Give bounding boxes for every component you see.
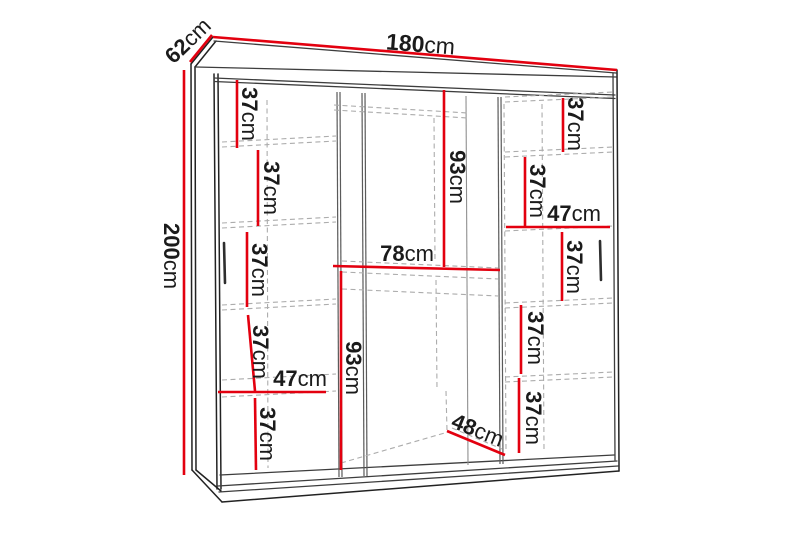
- left-back-edge-inner: [195, 67, 196, 470]
- frame-top-line-2: [214, 82, 615, 99]
- right-shelf-3-label: 37cm: [562, 240, 587, 294]
- right-shelf-1-label: 37cm: [563, 97, 588, 151]
- left-front-edge-inner: [218, 74, 221, 489]
- door-divider-c1: [498, 97, 500, 464]
- door-divider-b2: [365, 93, 367, 476]
- right-door-handle: [600, 241, 601, 280]
- left-front-edge-outer: [214, 74, 217, 489]
- right-section-width-label: 47cm: [547, 201, 601, 226]
- left-back-edge-outer: [191, 64, 192, 470]
- right-edge-inner: [613, 73, 615, 460]
- frame-top-line-1: [214, 78, 615, 95]
- bottom-silhouette: [222, 471, 619, 502]
- right-edge-outer: [617, 70, 619, 471]
- left-shelf-1-label: 37cm: [237, 87, 262, 141]
- height-dimension-label: 200cm: [159, 223, 184, 289]
- door-divider-c2: [501, 97, 503, 464]
- left-section-width-label: 47cm: [273, 366, 327, 391]
- left-shelf-5-label: 37cm: [255, 407, 280, 461]
- right-shelf-4-label: 37cm: [523, 311, 548, 365]
- door-divider-b1: [362, 93, 364, 476]
- bottom-depth-label: 48cm: [448, 408, 507, 451]
- width-dimension-label: 180cm: [385, 28, 456, 59]
- right-shelf-5-label: 37cm: [521, 391, 546, 445]
- left-shelf-4-label: 37cm: [248, 325, 273, 379]
- middle-section-width-line: [333, 266, 500, 270]
- dimension-labels: 180cm 62cm 200cm 37cm 37cm 37cm 37cm 47c…: [159, 13, 601, 461]
- middle-section-width-label: 78cm: [380, 241, 434, 266]
- left-shelf-2-label: 37cm: [259, 161, 284, 215]
- middle-lower-height-label: 93cm: [341, 341, 366, 395]
- wardrobe-dimension-diagram-page: 180cm 62cm 200cm 37cm 37cm 37cm 37cm 47c…: [0, 0, 800, 533]
- wardrobe-dimension-diagram: 180cm 62cm 200cm 37cm 37cm 37cm 37cm 47c…: [0, 0, 800, 533]
- door-divider-a1: [337, 92, 339, 477]
- hidden-shelf-lines-middle: [334, 105, 502, 463]
- hidden-shelf-lines-right: [504, 92, 614, 450]
- left-door-handle: [224, 243, 225, 283]
- plinth-mid-line: [219, 466, 618, 492]
- left-shelf-3-label: 37cm: [247, 243, 272, 297]
- middle-upper-height-label: 93cm: [445, 150, 470, 204]
